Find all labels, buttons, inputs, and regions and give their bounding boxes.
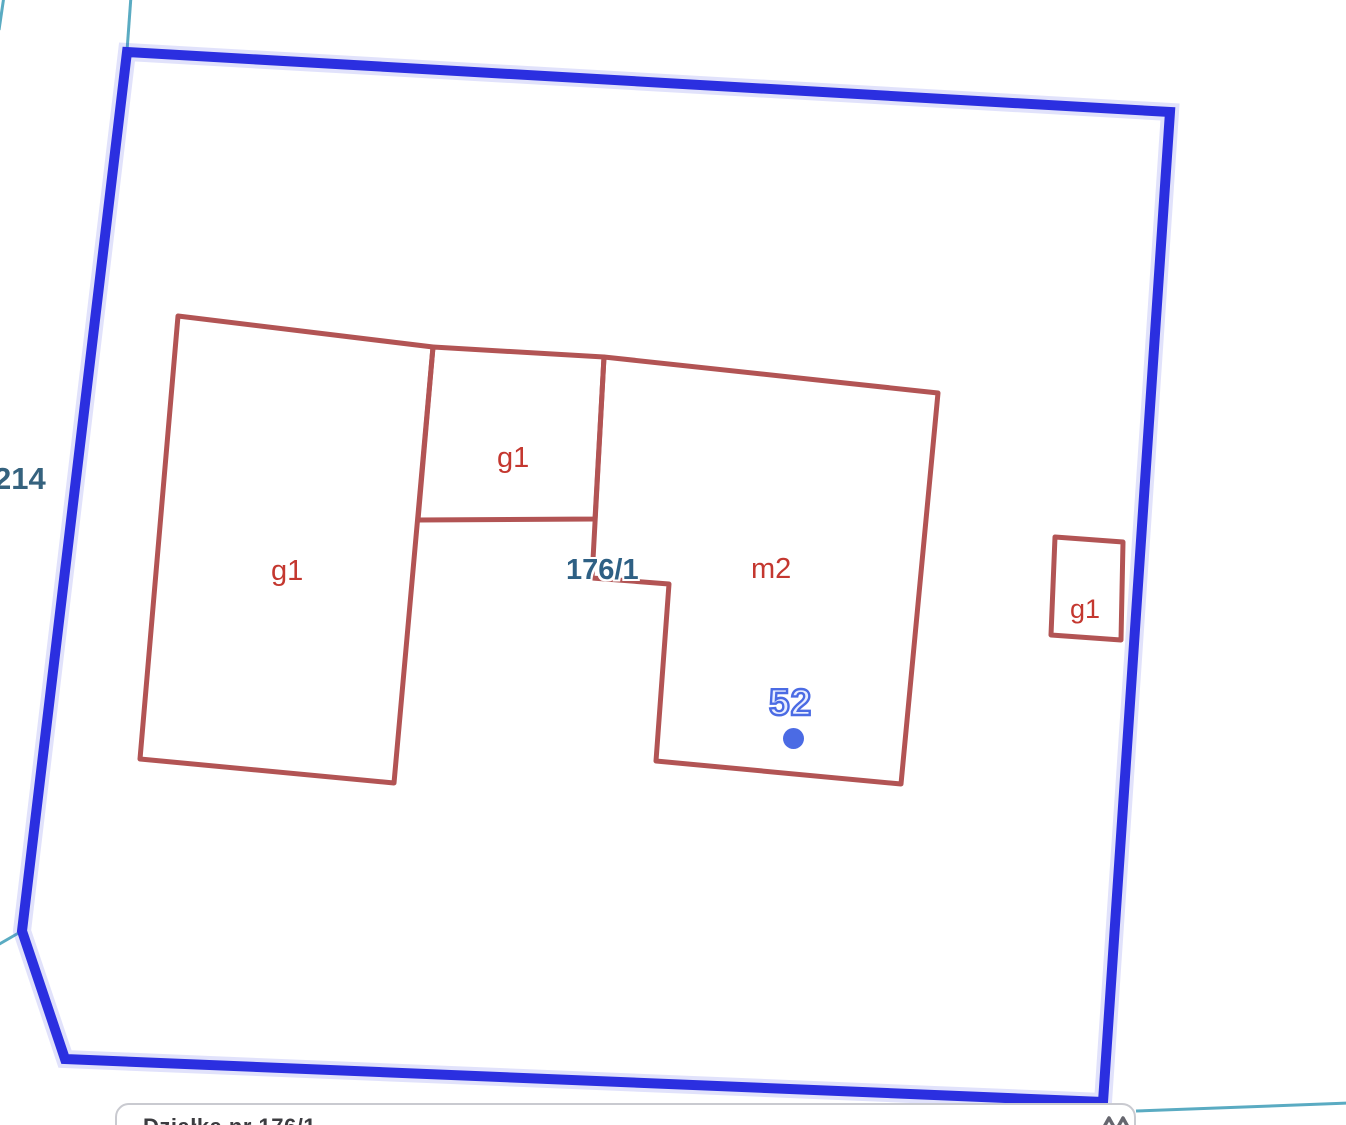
neighbor-line-bottom-right [1136,1103,1346,1111]
building-label-m2: m2 [751,555,791,584]
building-label-right-g1: g1 [1070,596,1100,623]
building-outline-left-g1[interactable] [140,316,433,783]
map-viewport[interactable]: 214 176/1 g1 g1 m2 g1 52 Działka nr 176/… [0,0,1346,1125]
address-point-dot[interactable] [783,728,804,749]
bottom-info-bar[interactable]: Działka nr 176/1 [115,1103,1136,1125]
adjacent-parcel-number-label: 214 [0,463,46,494]
building-outline-right-g1[interactable] [1051,537,1123,640]
building-label-left-g1: g1 [271,557,303,586]
bottom-bar-text: Działka nr 176/1 [143,1114,316,1125]
cadastral-map-canvas [0,0,1346,1125]
building-label-square-g1: g1 [497,444,529,473]
address-number-label: 52 [769,684,812,721]
neighbor-line-top-left [0,0,4,30]
building-outline-square-g1[interactable] [418,347,604,520]
parcel-number-label: 176/1 [566,556,639,585]
double-peak-icon[interactable] [1096,1110,1136,1125]
